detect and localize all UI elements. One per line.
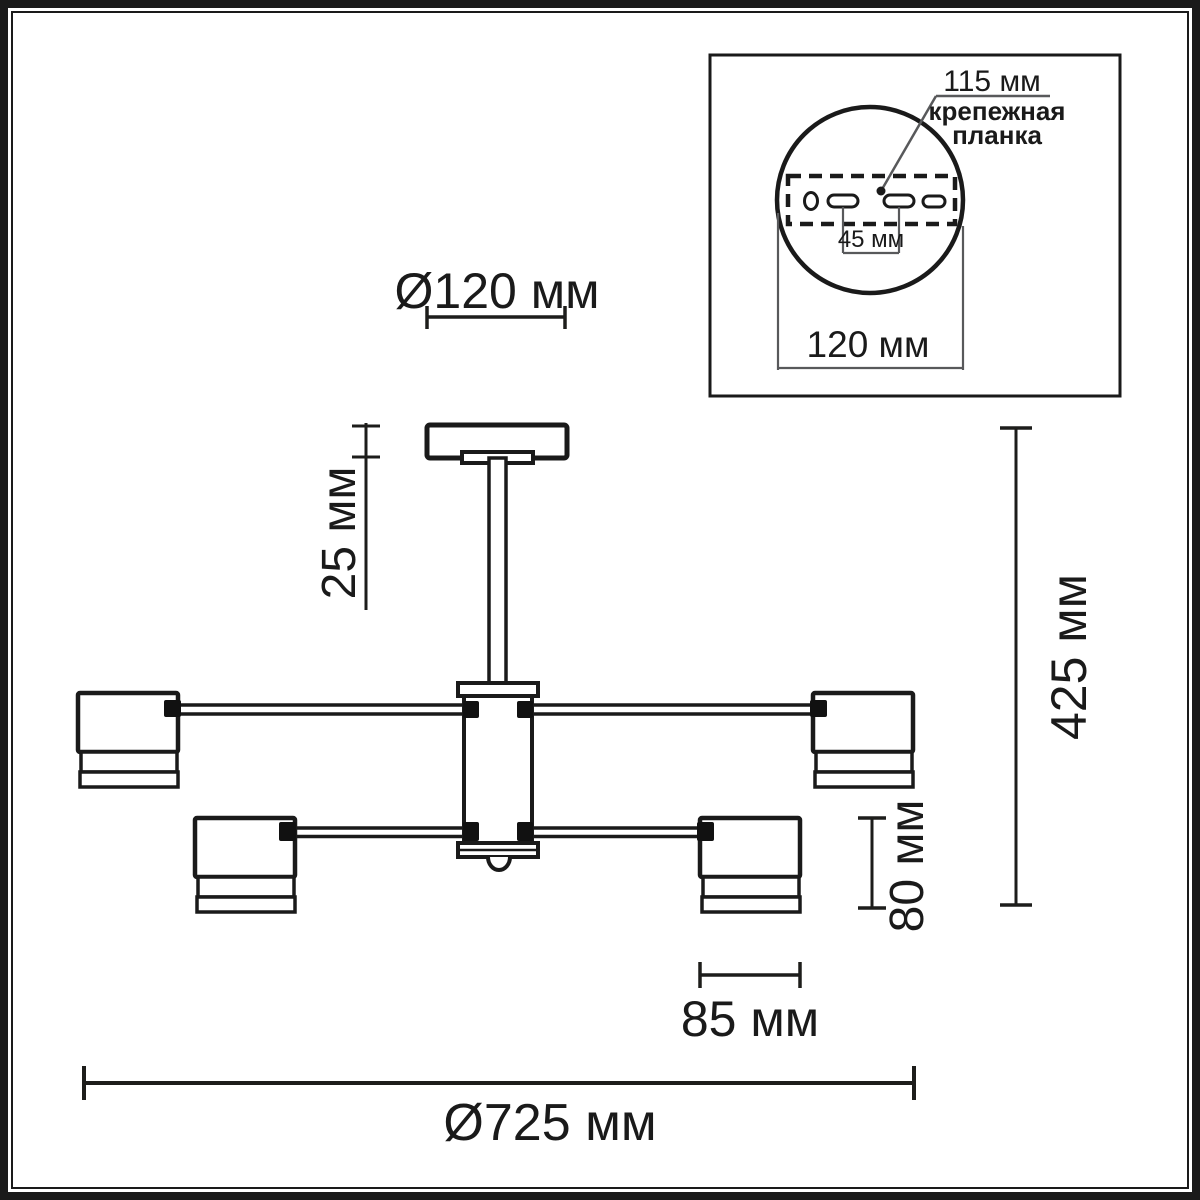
shade-rim: [197, 897, 295, 912]
stem: [489, 458, 506, 693]
side-view: [78, 425, 913, 912]
connector-lower-right-shade: [697, 822, 714, 841]
leader-dot: [877, 187, 886, 196]
label-bracket-name-2: планка: [952, 120, 1042, 150]
shade-body: [78, 693, 178, 752]
connector-hub-top-left: [463, 701, 479, 718]
connector-hub-bottom-right: [517, 822, 533, 841]
shade-band: [81, 752, 177, 772]
label-fixture-diameter: Ø725 мм: [443, 1094, 656, 1152]
label-canopy-height: 25 мм: [313, 467, 366, 600]
label-hole-spacing: 45 мм: [838, 226, 904, 253]
shade-band: [703, 877, 799, 897]
label-shade-height: 80 мм: [881, 800, 934, 933]
mounting-slot-left: [828, 195, 858, 207]
mounting-slot-small: [923, 196, 945, 207]
connector-hub-top-right: [517, 701, 533, 718]
lamp-shade-upper-right: [813, 693, 913, 787]
labels: Ø120 мм 25 мм 425 мм 80 мм 85 мм Ø725 мм…: [313, 65, 1097, 1152]
connector-upper-left-shade: [164, 700, 181, 717]
shade-band: [816, 752, 912, 772]
label-canopy-diameter: Ø120 мм: [395, 263, 600, 319]
label-bracket-length: 115 мм: [943, 65, 1040, 98]
shade-body: [813, 693, 913, 752]
shade-rim: [702, 897, 800, 912]
connector-hub-bottom-left: [463, 822, 479, 841]
shade-rim: [815, 772, 913, 787]
mounting-hole-round: [805, 193, 818, 210]
shade-band: [198, 877, 294, 897]
lamp-shade-lower-right: [700, 818, 800, 912]
label-fixture-height: 425 мм: [1041, 574, 1097, 740]
shade-rim: [80, 772, 178, 787]
hub-top-cap: [458, 683, 538, 696]
connector-lower-left-shade: [279, 822, 296, 841]
lamp-shade-upper-left: [78, 693, 178, 787]
label-shade-diameter: 85 мм: [681, 991, 819, 1047]
label-base-diameter: 120 мм: [807, 324, 930, 365]
connector-upper-right-shade: [810, 700, 827, 717]
chandelier-diagram: Ø120 мм 25 мм 425 мм 80 мм 85 мм Ø725 мм…: [0, 0, 1200, 1200]
shade-body: [700, 818, 800, 877]
hub-finial-knob: [488, 857, 510, 870]
mounting-slot-right: [884, 195, 914, 207]
